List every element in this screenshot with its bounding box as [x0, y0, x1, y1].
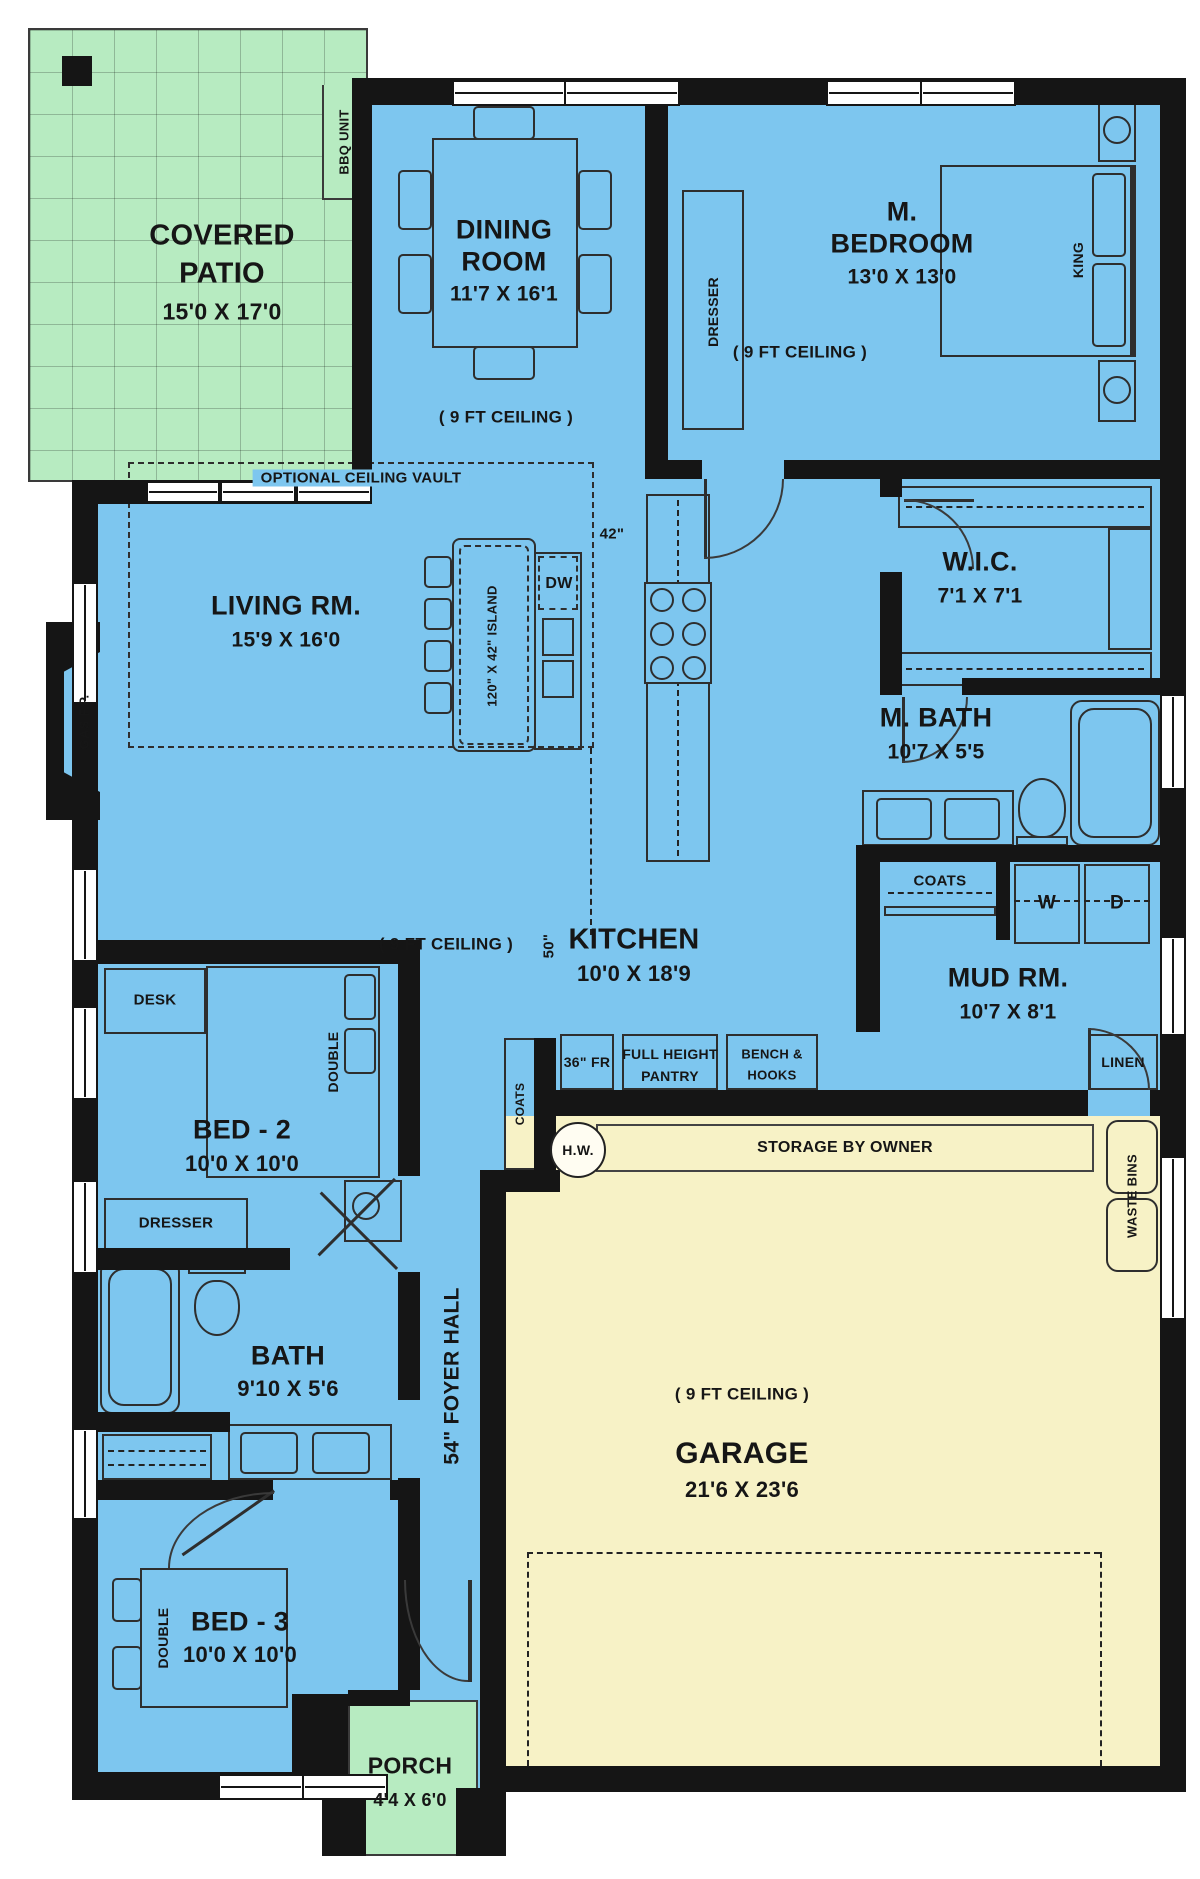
bed2-label: BED - 2: [193, 1117, 291, 1144]
porch-label: PORCH: [368, 1755, 453, 1778]
coats-label: COATS: [914, 874, 967, 889]
linen-shelf: [108, 1450, 206, 1452]
washer-label: W: [1038, 894, 1056, 913]
wall-dining-bedroom: [645, 105, 668, 460]
wall-mbath-south: [856, 845, 1186, 862]
bar-stool: [424, 556, 452, 588]
kitchen-50-note: 50": [542, 934, 557, 959]
pillow: [112, 1578, 142, 1622]
bed2-double-label: DOUBLE: [326, 1032, 340, 1093]
window: [1160, 936, 1186, 1036]
wic-dims: 7'1 X 7'1: [937, 586, 1022, 607]
porch-dims: 4'4 X 6'0: [373, 1791, 446, 1809]
bench-hooks-label: BENCH &: [741, 1048, 802, 1061]
ceiling-vault-label: OPTIONAL CEILING VAULT: [253, 470, 470, 487]
master-bedroom-dims: 13'0 X 13'0: [847, 267, 956, 288]
window: [452, 80, 566, 106]
wall-porch-top: [348, 1690, 410, 1706]
wall-tub-linen: [98, 1412, 230, 1432]
mud-room-label: MUD RM.: [948, 965, 1069, 992]
patio-label: COVERED: [149, 222, 295, 251]
bar-stool: [424, 640, 452, 672]
wall-bedroom-south-a: [645, 460, 702, 479]
water-heater-label: H.W.: [562, 1143, 594, 1157]
pillow: [1092, 263, 1126, 347]
wall-wic-mbath-b: [962, 678, 1186, 695]
living-room-label: LIVING RM.: [211, 593, 361, 620]
dining-label2: ROOM: [461, 249, 546, 276]
bbq-unit-label: BBQ UNIT: [338, 109, 351, 174]
window: [826, 80, 922, 106]
front-door-slab: [468, 1580, 472, 1682]
dining-chair: [398, 254, 432, 314]
linen-shelf: [108, 1464, 206, 1466]
dining-chair: [578, 254, 612, 314]
window: [72, 868, 98, 962]
linen-label: LINEN: [1101, 1055, 1145, 1069]
washer-dryer-line: [1014, 900, 1150, 902]
wall-kitchen-mud: [856, 852, 880, 1032]
bench-hooks-label2: HOOKS: [747, 1069, 796, 1082]
closet-shelf: [1108, 528, 1152, 650]
bar-stool: [424, 598, 452, 630]
window: [218, 1774, 304, 1800]
bath-dims: 9'10 X 5'6: [237, 1378, 339, 1400]
pillow: [344, 1028, 376, 1074]
patio-dims: 15'0 X 17'0: [162, 301, 281, 324]
mud-room-dims: 10'7 X 8'1: [959, 1002, 1056, 1023]
window: [920, 80, 1016, 106]
foyer-hall-label: 54" FOYER HALL: [442, 1287, 463, 1465]
pantry-label2: PANTRY: [641, 1069, 699, 1083]
bath-tub-inner: [108, 1268, 172, 1406]
wall-bed2-north: [98, 940, 420, 964]
kitchen-42-note: 42": [600, 527, 625, 542]
sink: [312, 1432, 370, 1474]
garage-door-dashed-left: [527, 1552, 529, 1766]
window: [72, 1428, 98, 1520]
gas-fireplace-label: GAS F.P.: [78, 695, 91, 750]
kitchen-label: KITCHEN: [569, 926, 700, 955]
kitchen-boundary-dashed: [590, 748, 592, 935]
toilet-bowl: [1018, 778, 1066, 838]
king-bed-label: KING: [1071, 242, 1085, 278]
window: [1160, 694, 1186, 790]
garage-label: GARAGE: [675, 1439, 808, 1469]
upper-coats-shelf: [884, 906, 996, 916]
window: [564, 80, 680, 106]
master-bedroom-label: M.: [887, 199, 918, 226]
kitchen-dims: 10'0 X 18'9: [577, 963, 691, 985]
garage-floor: [506, 1116, 1162, 1768]
foyer-coats-label: COATS: [514, 1083, 526, 1126]
burner: [682, 588, 706, 612]
dining-chair: [578, 170, 612, 230]
dining-ceiling-note: ( 9 FT CEILING ): [439, 409, 573, 426]
hall-linen-closet: [102, 1434, 212, 1480]
wall-garage-south: [480, 1766, 1186, 1792]
bed2-dresser-label: DRESSER: [139, 1216, 214, 1231]
bed3-dims: 10'0 X 10'0: [183, 1644, 297, 1666]
burner: [682, 622, 706, 646]
dryer-label: D: [1110, 894, 1124, 913]
bed3-label: BED - 3: [191, 1609, 289, 1636]
window: [72, 582, 98, 704]
dishwasher-label: DW: [545, 576, 572, 592]
garage-door-dashed-top: [527, 1552, 1100, 1554]
dining-chair: [473, 106, 535, 140]
wic-label: W.I.C.: [942, 549, 1017, 576]
patio-post: [62, 56, 92, 86]
sink: [240, 1432, 298, 1474]
pantry-label: FULL HEIGHT: [622, 1047, 718, 1061]
kitchen-ceiling-note: ( 9 FT CEILING ): [379, 936, 513, 953]
storage-by-owner-label: STORAGE BY OWNER: [757, 1140, 933, 1156]
desk-label: DESK: [134, 993, 177, 1008]
pillow: [1092, 173, 1126, 257]
wall-dining-west: [352, 78, 372, 482]
wall-bath-bed3-b: [390, 1480, 420, 1500]
garage-ceiling-note: ( 9 FT CEILING ): [675, 1386, 809, 1403]
closet-rod: [906, 506, 1144, 508]
bed3-double-label: DOUBLE: [156, 1608, 170, 1669]
burner: [650, 622, 674, 646]
patio-label2: PATIO: [179, 260, 265, 289]
porch-foot-right: [456, 1788, 506, 1856]
coats-rod: [888, 892, 992, 894]
headboard: [1130, 165, 1135, 357]
island-label: 120" X 42" ISLAND: [486, 585, 499, 706]
burner: [682, 656, 706, 680]
dining-label: DINING: [456, 217, 552, 244]
pillow: [112, 1646, 142, 1690]
island-sink: [542, 618, 574, 656]
dining-chair: [398, 170, 432, 230]
toilet-bowl: [194, 1280, 240, 1336]
closet-rod: [906, 668, 1144, 670]
living-room-dims: 15'9 X 16'0: [231, 630, 340, 651]
floor-plan: COVERED PATIO 15'0 X 17'0 BBQ UNIT DININ…: [0, 0, 1200, 1879]
wall-foyer-west-a: [398, 964, 420, 1176]
burner: [650, 588, 674, 612]
wall-garage-north-b: [1150, 1090, 1186, 1116]
window: [1160, 1156, 1186, 1320]
master-bedroom-label2: BEDROOM: [830, 231, 973, 258]
garage-dims: 21'6 X 23'6: [685, 1479, 799, 1501]
bed2-dims: 10'0 X 10'0: [185, 1153, 299, 1175]
wall-wic-west-a: [880, 479, 902, 497]
garage-door-dashed-right: [1100, 1552, 1102, 1766]
bar-stool: [424, 682, 452, 714]
burner: [650, 656, 674, 680]
waste-bins-label: WASTE BINS: [1126, 1154, 1139, 1238]
lamp: [1103, 116, 1131, 144]
wall-bedroom-south-b: [784, 460, 1186, 479]
mbath-label: M. BATH: [880, 705, 993, 732]
sink: [944, 798, 1000, 840]
sink: [876, 798, 932, 840]
master-dresser-label: DRESSER: [706, 277, 720, 347]
wall-garage-north-a: [534, 1090, 1088, 1116]
mbath-tub-inner: [1078, 708, 1152, 838]
island-sink: [542, 660, 574, 698]
dining-chair: [473, 346, 535, 380]
lamp: [1103, 376, 1131, 404]
window: [72, 1006, 98, 1100]
wall-coats-wd-stub: [996, 862, 1010, 940]
bath-label: BATH: [251, 1343, 325, 1370]
wall-bed2-bath: [98, 1248, 290, 1270]
wall-wic-mbath-a: [880, 678, 902, 695]
mbath-dims: 10'7 X 5'5: [887, 742, 984, 763]
wall-foyer-jog: [480, 1170, 560, 1192]
dining-dims: 11'7 X 16'1: [450, 284, 558, 305]
wall-foyer-east: [480, 1178, 506, 1792]
fridge-label: 36" FR: [564, 1055, 611, 1069]
wall-east: [1160, 78, 1186, 1792]
covered-patio-floor: [28, 28, 368, 482]
window: [72, 1180, 98, 1274]
wall-wic-west-b: [880, 572, 902, 678]
window: [146, 481, 220, 503]
wall-foyer-west-b: [398, 1272, 420, 1400]
master-ceiling-note: ( 9 FT CEILING ): [733, 344, 867, 361]
pillow: [344, 974, 376, 1020]
